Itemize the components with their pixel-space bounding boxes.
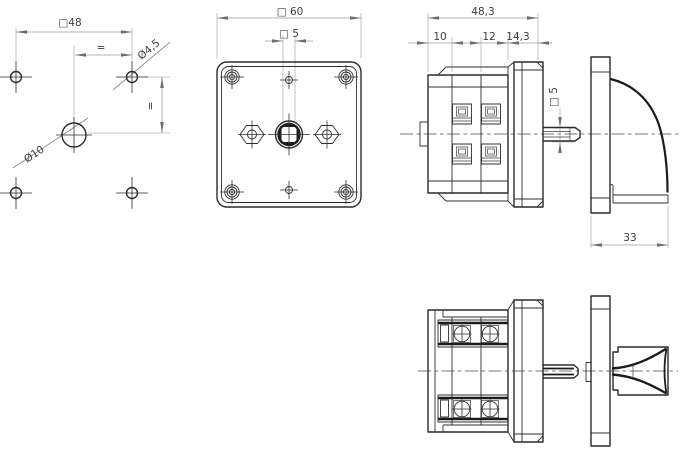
terminal-screw <box>453 400 472 419</box>
shaft-tab-bottom <box>586 363 591 382</box>
bottom-view <box>418 296 678 446</box>
center-hole <box>56 117 92 153</box>
terminal-strip-bottom <box>438 395 508 422</box>
side-view: 48,3 10 12 14,3 □ 5 33 <box>400 6 680 248</box>
dim-dia-4-5: Ø4,5 <box>136 37 163 62</box>
terminal-strip-top <box>438 320 508 347</box>
dim-square60: □ 60 <box>277 6 304 18</box>
escutcheon-plate-side <box>591 57 610 213</box>
terminal-screw <box>481 325 500 344</box>
handle-knob-side <box>610 79 668 203</box>
front-flange-side <box>508 62 543 207</box>
dim-depth-mid: 12 <box>482 31 495 43</box>
dim-square48: □48 <box>58 17 81 29</box>
hex-nut-right <box>313 121 341 149</box>
dim-depth-front: 14,3 <box>506 31 529 43</box>
dim-handle-depth: 33 <box>623 232 636 244</box>
technical-drawing: □48 = Ø4,5 Ø10 = □ 60 □ 5 <box>0 0 684 455</box>
terminal-screw <box>481 400 500 419</box>
terminal-screw <box>453 325 472 344</box>
switch-body-side <box>420 62 580 207</box>
dim-equal-vertical: = <box>145 102 157 111</box>
dim-depth-rear: 10 <box>433 31 446 43</box>
hex-nut-left <box>238 121 266 149</box>
shaft-bottom <box>543 365 578 378</box>
dim-shaft-square5: □ 5 <box>548 87 560 107</box>
dim-depth-overall: 48,3 <box>471 6 494 18</box>
dim-equal-horizontal: = <box>97 42 106 54</box>
dim-dia-10: Ø10 <box>22 143 47 165</box>
drawing-canvas: □48 = Ø4,5 Ø10 = □ 60 □ 5 <box>0 0 684 455</box>
dim-square5-front: □ 5 <box>279 28 299 40</box>
center-shaft-front <box>268 114 310 156</box>
drill-template-view: □48 = Ø4,5 Ø10 = <box>0 17 170 209</box>
side-extension-lines <box>428 13 668 248</box>
front-view: □ 60 □ 5 <box>217 6 361 207</box>
